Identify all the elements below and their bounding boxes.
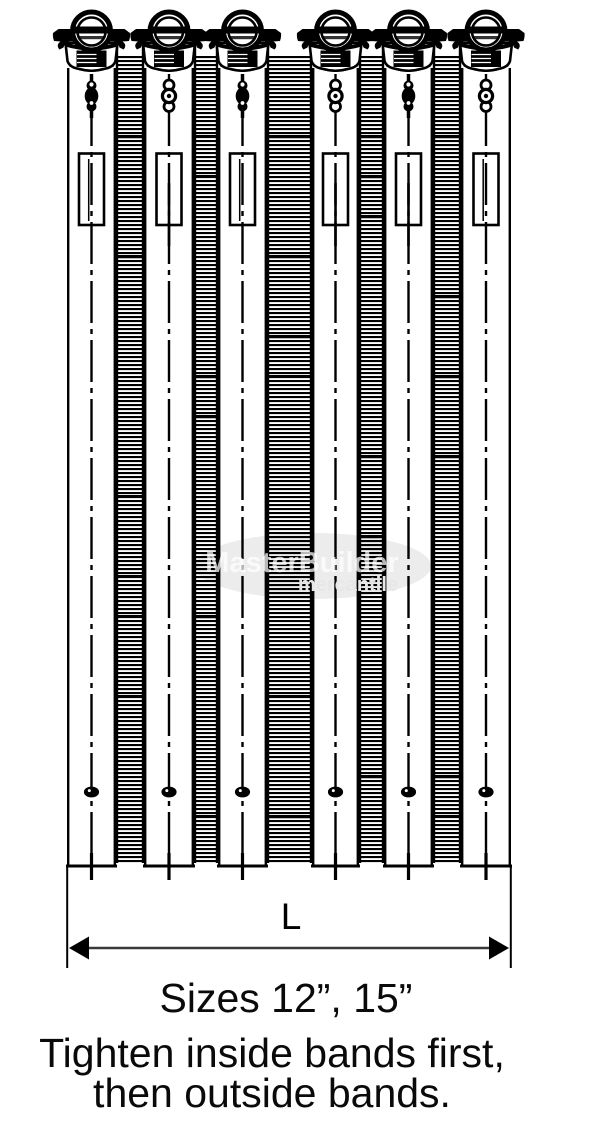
svg-text:mercantile: mercantile bbox=[298, 574, 398, 596]
svg-text:Sizes 12”, 15”: Sizes 12”, 15” bbox=[160, 975, 413, 1021]
svg-text:then outside bands.: then outside bands. bbox=[93, 1070, 451, 1116]
svg-text:L: L bbox=[281, 896, 302, 937]
